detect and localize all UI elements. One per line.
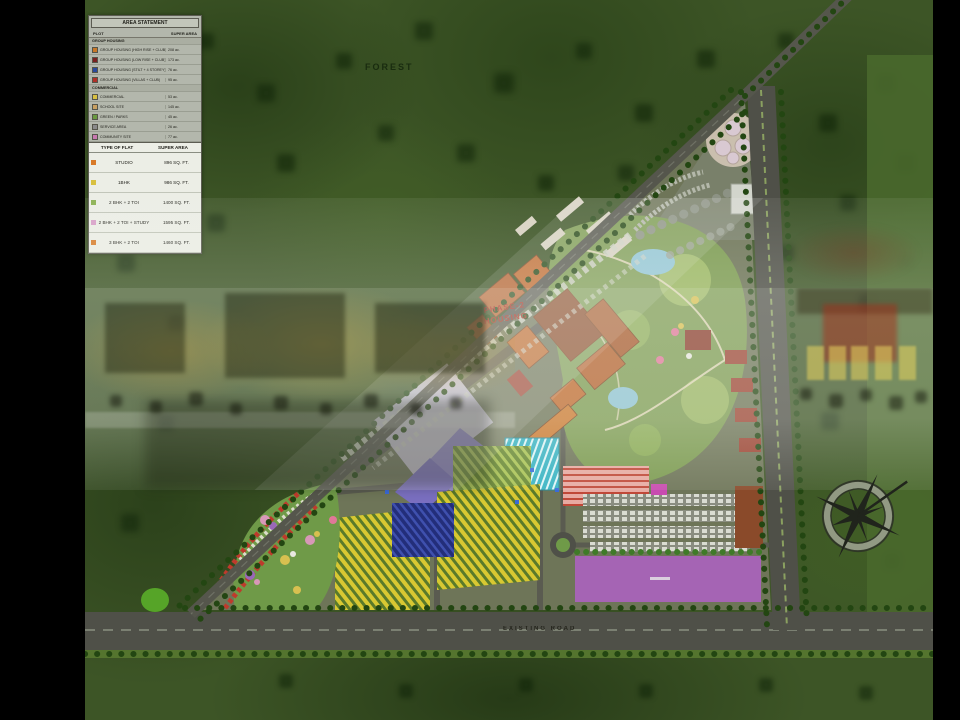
color-chip [92,134,98,140]
group-heading-2: COMMERCIAL [89,85,201,92]
legend-row: SCHOOL SITE145 ac. [89,102,201,112]
flat-row: 2 BHK + 2 TOI + STUDY1595 SQ. FT. [89,213,201,233]
video-frame: FOREST PHASE-2 HOUSING EXISTING ROAD ARE… [0,0,960,720]
color-chip [92,124,98,130]
area-statement-title: AREA STATEMENT [91,18,199,28]
legend-row: GROUP HOUSING (STILT + 4 STOREY)76 ac. [89,65,201,75]
flat-row: STUDIO896 SQ. FT. [89,153,201,173]
letterbox-right [933,0,960,720]
legend-row: GROUP HOUSING (HIGH RISE + CLUB)208 ac. [89,45,201,55]
master-plan-canvas: FOREST PHASE-2 HOUSING EXISTING ROAD ARE… [85,0,933,720]
col-plot: PLOT [93,31,104,36]
group-heading-1: GROUP HOUSING [89,38,201,45]
color-chip [92,57,98,63]
legend-row: COMMUNITY SITE77 ac. [89,132,201,142]
roundabout [550,532,576,558]
magenta-block [651,484,667,495]
pond-small [608,387,638,409]
legend-row: SERVICE AREA26 ac. [89,122,201,132]
legend-panel: AREA STATEMENT PLOT SUPER AREA GROUP HOU… [88,15,202,254]
legend-row: GREEN / PARKS45 ac. [89,112,201,122]
color-chip [92,94,98,100]
flat-table-header: TYPE OF FLAT SUPER AREA [89,143,201,153]
area-statement-columns: PLOT SUPER AREA [89,30,201,38]
brown-tower-block [735,486,763,548]
color-chip [92,47,98,53]
site-plan-svg [85,0,933,720]
color-chip [92,104,98,110]
bright-green-patch [141,588,169,612]
legend-row: GROUP HOUSING (LOW RISE + CLUB)173 ac. [89,55,201,65]
bottom-road-label: EXISTING ROAD [503,626,576,632]
navy-housing-block [392,503,454,557]
photo-dark-silhouette-area [145,400,490,488]
legend-row: GROUP HOUSING (VILLAS + CLUB)95 ac. [89,75,201,85]
forest-label: FOREST [365,62,414,72]
color-chip [92,77,98,83]
col-super-area: SUPER AREA [171,31,197,36]
color-chip [92,67,98,73]
flat-type-table: TYPE OF FLAT SUPER AREA STUDIO896 SQ. FT… [89,142,201,253]
flat-row: 1BHK986 SQ. FT. [89,173,201,193]
flat-row: 2 BHK + 2 TOI1400 SQ. FT. [89,193,201,213]
legend-row: COMMERCIAL53 ac. [89,92,201,102]
commercial-block-text [650,577,670,580]
letterbox-left [0,0,85,720]
color-chip [92,114,98,120]
compass-rose-icon [808,466,908,566]
flat-row: 3 BHK + 2 TOI1460 SQ. FT. [89,233,201,253]
